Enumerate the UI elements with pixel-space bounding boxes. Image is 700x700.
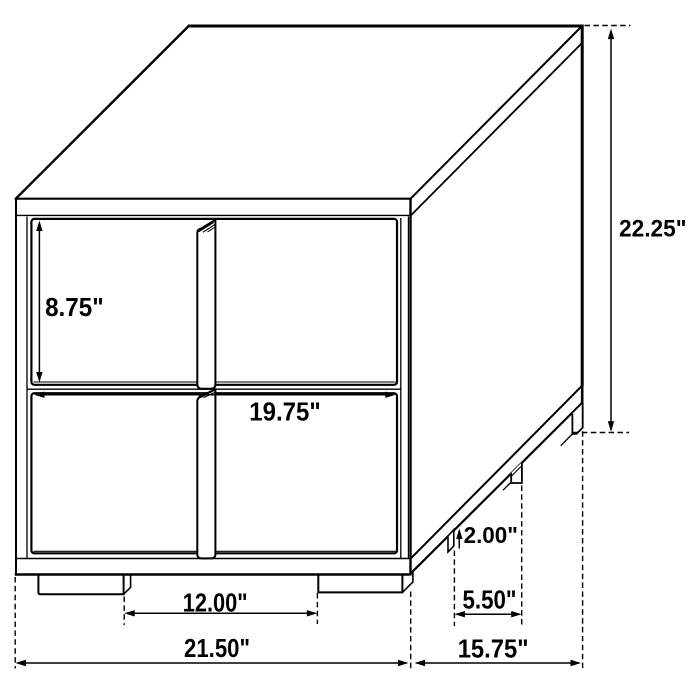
svg-text:5.50": 5.50" (463, 585, 517, 615)
svg-text:22.25": 22.25" (619, 216, 687, 243)
svg-text:8.75": 8.75" (45, 292, 104, 322)
svg-text:2.00": 2.00" (464, 522, 518, 548)
svg-text:12.00": 12.00" (183, 587, 248, 617)
svg-text:21.50": 21.50" (184, 633, 250, 663)
svg-text:15.75": 15.75" (458, 634, 529, 664)
svg-text:19.75": 19.75" (249, 396, 320, 426)
